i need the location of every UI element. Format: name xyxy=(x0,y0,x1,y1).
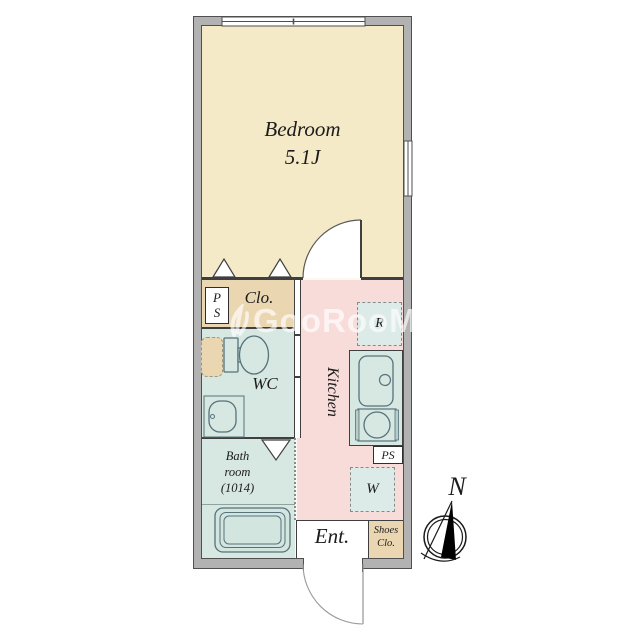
ps-bottom-label: PS xyxy=(381,448,394,463)
refrigerator-label: R xyxy=(375,316,384,332)
bathroom-divider-line xyxy=(202,504,295,505)
pipe-space-top: P S xyxy=(205,287,229,324)
refrigerator-space: R xyxy=(357,302,402,346)
door-jamb-tick xyxy=(294,376,301,378)
wc-label: WC xyxy=(240,374,290,394)
wall-wc-bathroom xyxy=(202,437,295,439)
entrance-door-opening xyxy=(303,558,363,572)
kitchen-label: Kitchen xyxy=(322,346,342,438)
entrance-label: Ent. xyxy=(296,524,368,549)
closet-label: Clo. xyxy=(228,288,290,308)
water-heater-box xyxy=(201,337,223,377)
bath-line2: room xyxy=(205,464,270,480)
wall-bathroom-kitchen-dotted xyxy=(294,438,298,520)
door-jamb-tick xyxy=(294,334,301,336)
wall-closet-wc xyxy=(202,327,295,329)
floor-plan-canvas: P S R PS W xyxy=(0,0,640,640)
wall-bedroom-bottom-left xyxy=(202,277,303,280)
entrance-door xyxy=(303,564,363,624)
compass-north-label: N xyxy=(441,473,473,501)
bath-line3: (1014) xyxy=(205,480,270,496)
ps-top-line2: S xyxy=(213,306,221,320)
shoes-closet-label: Shoes Clo. xyxy=(369,524,403,550)
pipe-space-bottom: PS xyxy=(373,446,403,464)
bedroom-size: 5.1J xyxy=(202,143,403,171)
wall-wc-kitchen xyxy=(294,280,301,438)
shoes-line2: Clo. xyxy=(369,537,403,550)
bedroom-name: Bedroom xyxy=(202,115,403,143)
kitchen-counter xyxy=(349,350,403,446)
shoes-line1: Shoes xyxy=(369,524,403,537)
bedroom-label: Bedroom 5.1J xyxy=(202,115,403,172)
compass-icon xyxy=(421,501,466,561)
wall-bedroom-bottom-right xyxy=(361,277,403,280)
washer-space: W xyxy=(350,467,395,512)
bathroom-label: Bath room (1014) xyxy=(205,448,270,496)
ps-top-line1: P xyxy=(213,291,221,305)
washer-label: W xyxy=(366,481,379,498)
bath-line1: Bath xyxy=(205,448,270,464)
